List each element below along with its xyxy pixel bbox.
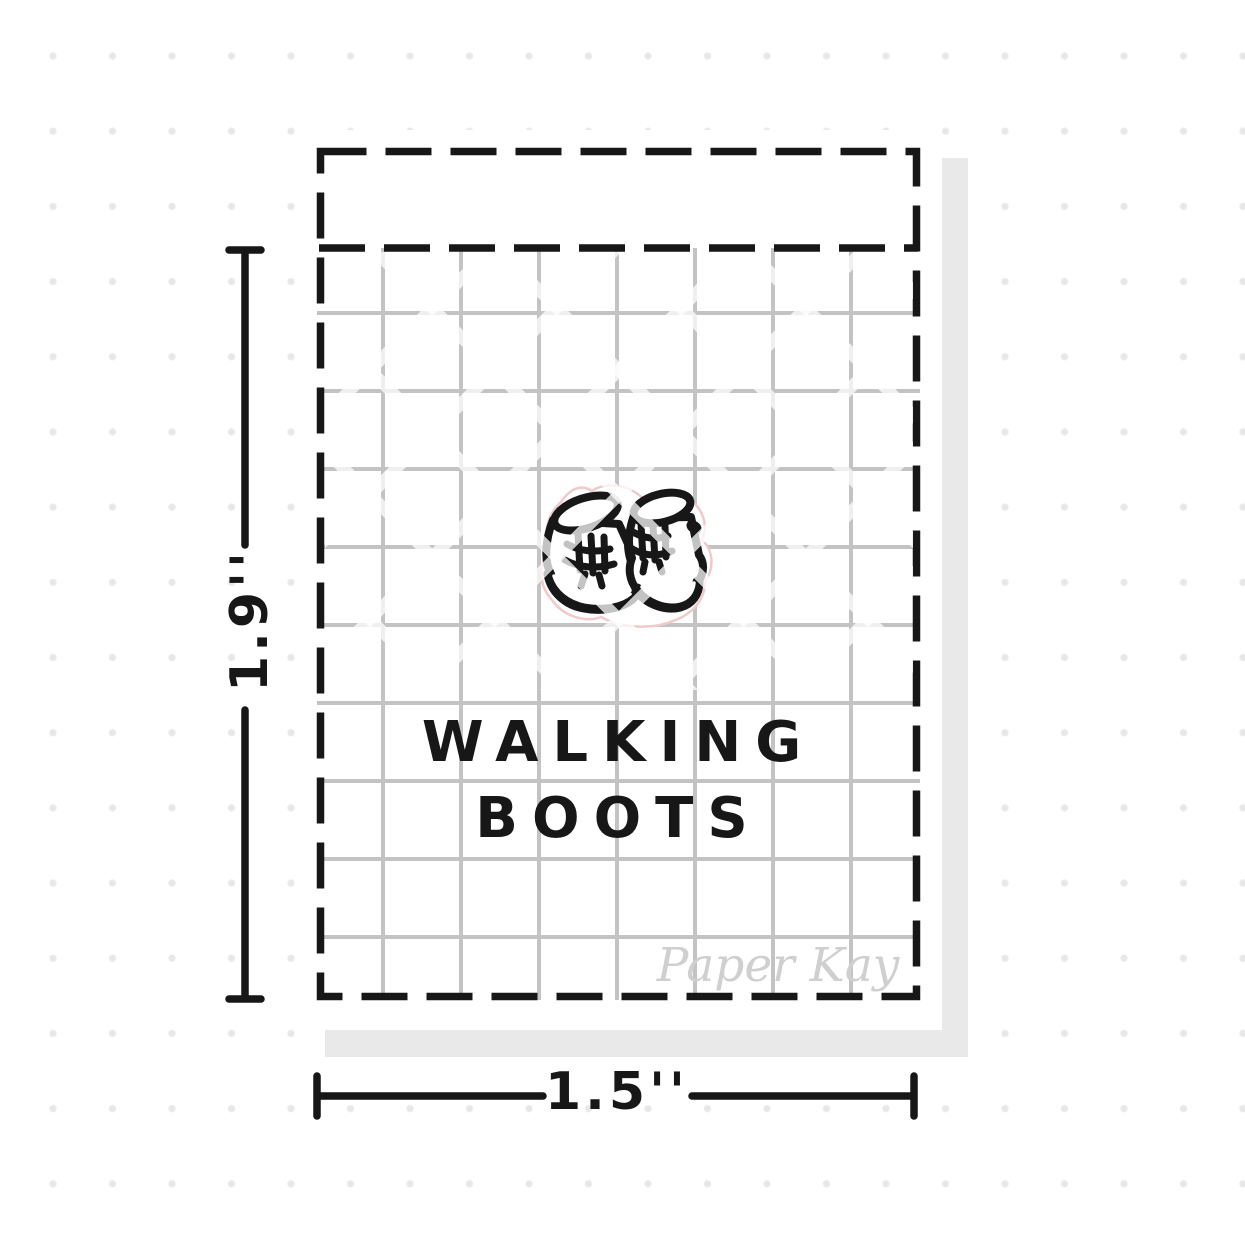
sticker-caption-line2: BOOTS <box>317 781 920 857</box>
sticker-caption: WALKING BOOTS <box>317 705 920 857</box>
brand-watermark: Paper Kay <box>638 938 918 993</box>
width-dimension-label: 1.5'' <box>545 1062 685 1122</box>
sticker-caption-line1: WALKING <box>317 705 920 781</box>
height-dimension-label: 1.9'' <box>220 552 280 692</box>
watermark-stripes <box>325 252 913 690</box>
